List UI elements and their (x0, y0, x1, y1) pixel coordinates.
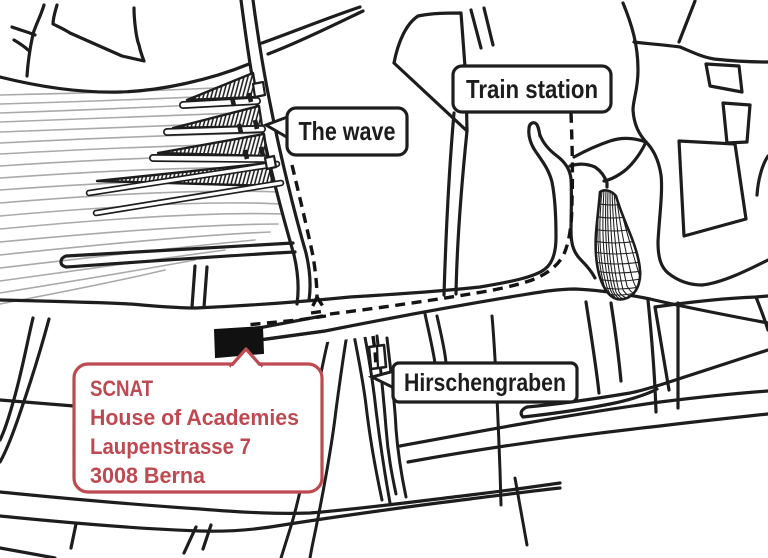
svg-text:Hirschengraben: Hirschengraben (404, 369, 566, 397)
svg-text:Train station: Train station (466, 74, 598, 104)
svg-text:House of Academies: House of Academies (90, 405, 299, 430)
svg-text:The wave: The wave (299, 116, 396, 146)
svg-text:SCNAT: SCNAT (90, 376, 153, 401)
svg-text:3008 Berna: 3008 Berna (90, 463, 206, 488)
svg-text:Laupenstrasse 7: Laupenstrasse 7 (90, 434, 251, 459)
